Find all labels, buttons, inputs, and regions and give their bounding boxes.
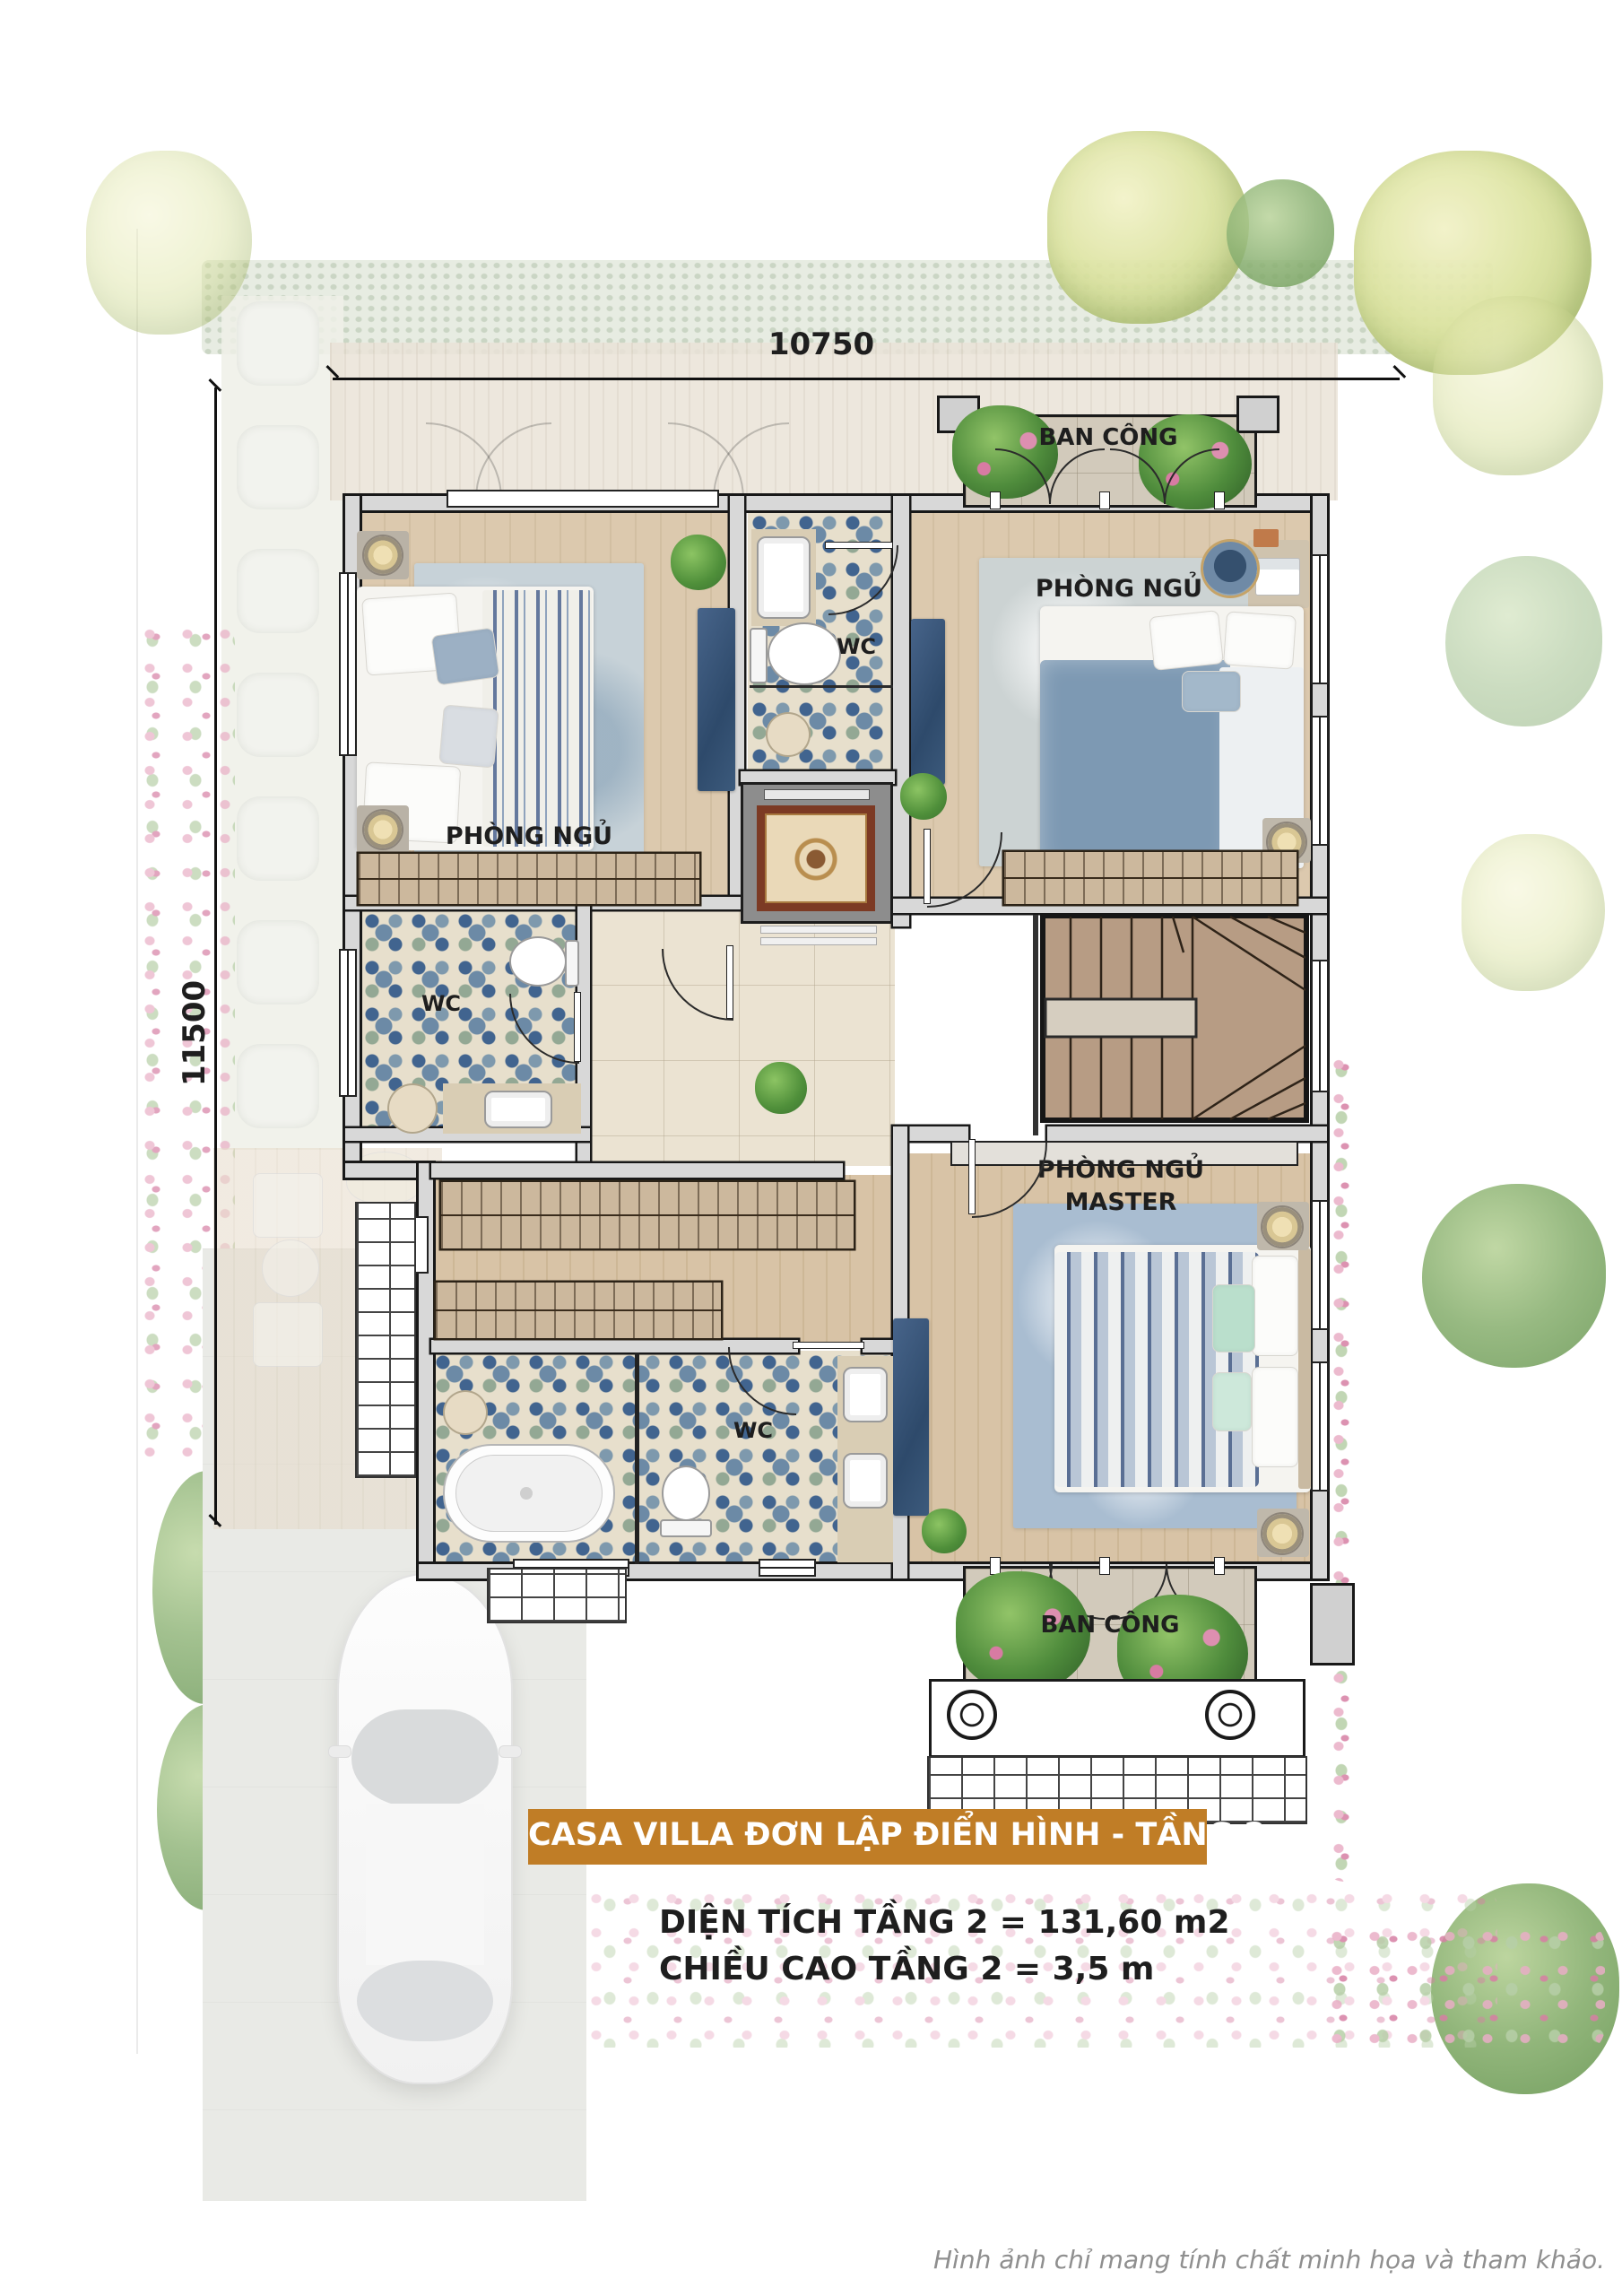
- stepping-stone: [237, 425, 319, 509]
- door-mullion: [1214, 491, 1225, 509]
- area-line: DIỆN TÍCH TẦNG 2 = 131,60 m2: [659, 1905, 1233, 1944]
- window: [339, 949, 357, 1097]
- wc-left-label: WC: [387, 992, 495, 1024]
- pillow: [1252, 1367, 1298, 1467]
- wc-top-stool: [768, 714, 809, 755]
- pillow: [430, 627, 499, 685]
- bath-sink: [843, 1367, 888, 1422]
- wc-left-stool: [389, 1085, 436, 1132]
- deck-table: [262, 1239, 319, 1297]
- dim-line-top: [333, 378, 1400, 380]
- foyer-step: [760, 926, 877, 934]
- plant: [755, 1062, 807, 1114]
- title-banner-text: CASA VILLA ĐƠN LẬP ĐIỂN HÌNH - TẦNG 2: [528, 1818, 1207, 1859]
- pillow: [1212, 1372, 1252, 1431]
- pillow: [438, 704, 499, 768]
- stepping-stone: [237, 920, 319, 1004]
- notebook: [1253, 529, 1279, 547]
- window: [1311, 554, 1329, 684]
- wc-left-toilet-tank: [565, 940, 579, 987]
- tree-right-middle: [1422, 1184, 1606, 1368]
- car-mirror-right: [499, 1745, 522, 1758]
- plant: [900, 773, 947, 820]
- deck-chair: [253, 1173, 323, 1238]
- stairs-rail: [1033, 915, 1038, 1135]
- wc-master-label: WC: [690, 1419, 816, 1451]
- table-lamp: [1262, 1207, 1302, 1247]
- foyer-step: [760, 937, 877, 945]
- bath-stool: [445, 1392, 486, 1433]
- table-lamp: [1262, 1514, 1302, 1553]
- wardrobe: [436, 1283, 721, 1338]
- window: [759, 1559, 816, 1577]
- balcony-column: [947, 1690, 997, 1740]
- flower-cluster-bottom-right: [1318, 1919, 1605, 2054]
- pillow: [1182, 671, 1241, 712]
- wardrobe: [441, 1182, 854, 1248]
- master-headboard: [1298, 1248, 1311, 1489]
- wall-bath-partition: [635, 1352, 639, 1564]
- stepping-stone: [237, 796, 319, 881]
- bath-toilet-tank: [660, 1519, 712, 1537]
- elevator-door-slot: [764, 789, 870, 800]
- window: [412, 1216, 429, 1274]
- bedroom1-bench: [698, 608, 735, 791]
- foyer-rug-medallion: [787, 834, 845, 884]
- stepping-stone: [237, 301, 319, 386]
- disclaimer-text: Hình ảnh chỉ mang tính chất minh họa và …: [897, 2247, 1605, 2283]
- window: [1311, 1200, 1329, 1330]
- door-mullion: [990, 491, 1001, 509]
- balcony-pier: [1239, 398, 1277, 430]
- window: [1311, 716, 1329, 846]
- door-mullion: [1099, 1557, 1110, 1575]
- wc-top-sink: [757, 536, 811, 619]
- door-leaf: [793, 1342, 864, 1349]
- wc-top-label: WC: [811, 635, 901, 665]
- pillow: [1223, 611, 1297, 669]
- bedroom2-label: PHÒNG NGỦ: [1011, 576, 1227, 608]
- car: [339, 1575, 511, 2083]
- table-lamp: [364, 536, 402, 574]
- car-windshield: [351, 1709, 499, 1808]
- brick-patch: [489, 1570, 625, 1622]
- door-mullion: [1214, 1557, 1225, 1575]
- pillow: [1252, 1256, 1298, 1356]
- deck-chair: [253, 1302, 323, 1367]
- master-bench: [893, 1318, 929, 1516]
- bedroom1-blanket: [482, 590, 592, 847]
- dim-width-label: 10750: [732, 328, 911, 368]
- bath-toilet: [662, 1465, 710, 1521]
- wc-left-toilet: [509, 936, 567, 987]
- tree-right-faded: [1462, 834, 1605, 991]
- table-lamp: [364, 811, 402, 848]
- bath-sink: [843, 1453, 888, 1509]
- car-mirror-left: [328, 1745, 351, 1758]
- plant: [922, 1509, 967, 1553]
- dim-line-left: [214, 387, 217, 1525]
- wall-dressing-top: [431, 1163, 843, 1178]
- pillow: [1149, 610, 1224, 671]
- dim-height-label: 11500: [178, 957, 214, 1109]
- side-ledge: [1313, 1586, 1352, 1663]
- hallway-floor: [588, 909, 895, 1166]
- bedroom1-label: PHÒNG NGỦ: [421, 823, 637, 856]
- window: [339, 572, 357, 756]
- window: [1311, 960, 1329, 1092]
- wc-top-toilet-tank: [750, 628, 768, 683]
- window: [447, 490, 719, 508]
- car-roof: [366, 1804, 484, 1965]
- balcony-top-label: BAN CÔNG: [1011, 425, 1205, 456]
- tree-right-faded: [1433, 296, 1603, 475]
- door-mullion: [1099, 491, 1110, 509]
- balcony-bottom-label: BAN CÔNG: [1013, 1613, 1207, 1643]
- staircase: [1040, 913, 1309, 1123]
- master-label-line2: MASTER: [1011, 1189, 1230, 1220]
- balcony-column: [1205, 1690, 1255, 1740]
- tree-right-faded: [1445, 556, 1602, 726]
- stepping-stone: [237, 673, 319, 757]
- bathtub-drain: [520, 1487, 533, 1500]
- pillow: [1212, 1284, 1255, 1352]
- wc-top-shower-divider: [750, 685, 893, 688]
- wall-stairs-master: [1047, 1126, 1327, 1141]
- wc-left-sink: [484, 1091, 552, 1128]
- window: [1311, 1361, 1329, 1492]
- plant: [671, 535, 726, 590]
- bedroom2-console: [911, 619, 945, 785]
- stepping-stone: [237, 549, 319, 633]
- height-line: CHIỀU CAO TẦNG 2 = 3,5 m: [659, 1952, 1233, 1991]
- laptop: [1255, 558, 1300, 596]
- stepping-stone: [237, 1044, 319, 1128]
- wardrobe: [359, 854, 699, 904]
- floor-plan-page: 10750 11500: [0, 0, 1622, 2296]
- brick-strip-left: [357, 1204, 414, 1476]
- dim-tick: [1393, 365, 1406, 378]
- car-rear-window: [357, 1961, 493, 2041]
- wardrobe: [1004, 852, 1297, 904]
- tree-top-center-small: [1227, 179, 1334, 287]
